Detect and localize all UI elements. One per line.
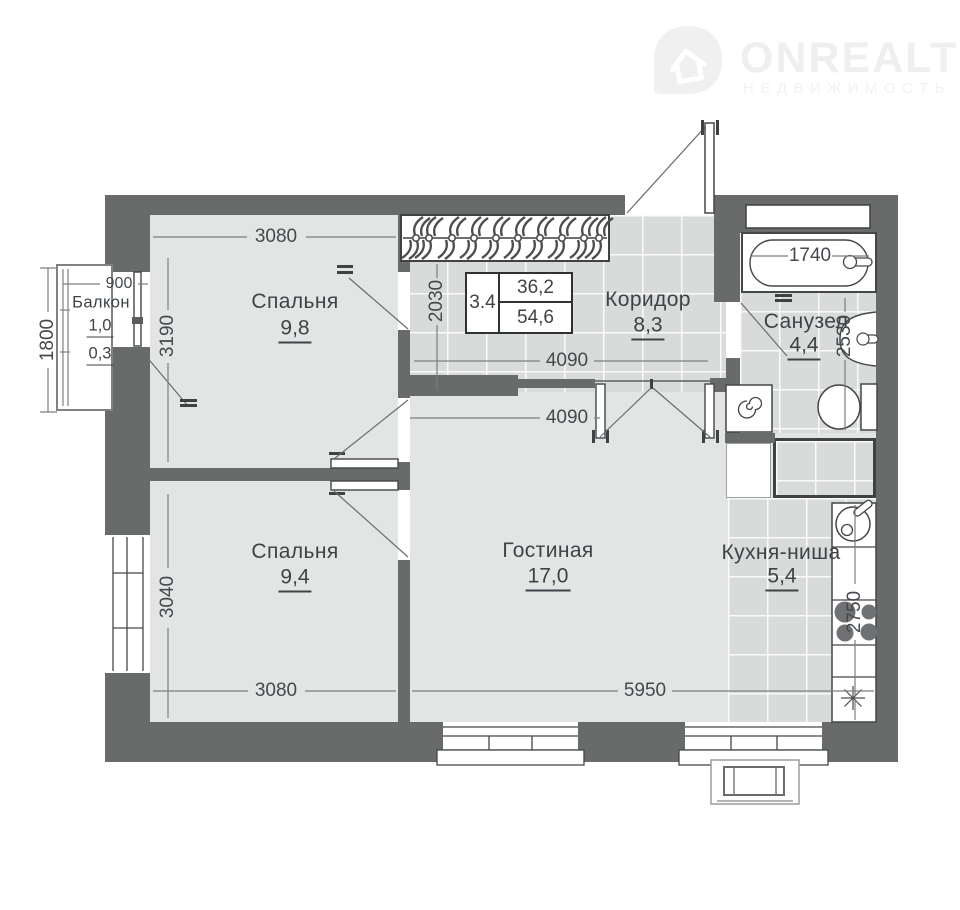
washing-machine	[726, 385, 772, 432]
dim-living-bottom-width: 5950	[624, 680, 666, 702]
area-summary-table: 3.4 36,2 54,6	[465, 272, 573, 334]
wardrobe	[401, 215, 613, 261]
bedroom1-area: 9,8	[278, 317, 311, 344]
area-summary-living: 36,2	[500, 274, 571, 303]
living-room-label: Гостиная	[502, 539, 593, 563]
dim-bathtub-length: 1740	[789, 245, 831, 267]
dim-corridor-width: 4090	[546, 350, 588, 372]
onrealt-logo-icon	[648, 20, 728, 100]
bedroom2-label: Спальня	[251, 540, 338, 564]
kitchen-window	[679, 722, 828, 765]
bedroom2-door	[329, 481, 408, 557]
balcony-area-full: 1,0	[87, 317, 114, 338]
living-room-double-door	[592, 379, 719, 443]
balcony-structure	[57, 265, 112, 410]
area-summary-total: 54,6	[500, 303, 571, 332]
dim-balcony-depth: 1800	[37, 319, 59, 361]
onrealt-logo-tagline: НЕДВИЖИМОСТЬ	[743, 80, 951, 97]
closet-door	[337, 265, 408, 329]
corridor-area: 8,3	[631, 314, 664, 341]
balcony-label: Балкон	[72, 294, 130, 313]
kitchen-niche-area: 5,4	[765, 565, 798, 592]
dim-living-width: 4090	[546, 407, 588, 429]
living-room-window	[437, 722, 584, 765]
bedroom2-window	[107, 535, 150, 673]
dim-bedroom2-depth: 3040	[157, 576, 179, 618]
toilet	[818, 384, 877, 430]
dim-balcony-width: 900	[106, 275, 133, 293]
bathroom-area: 4,4	[787, 334, 820, 361]
ac-basket	[711, 760, 799, 804]
dim-bedroom1-width: 3080	[255, 226, 297, 248]
bedroom1-door	[329, 400, 408, 468]
bathroom-niche	[746, 205, 870, 228]
living-room-area: 17,0	[526, 565, 571, 592]
dim-bedroom2-width: 3080	[255, 680, 297, 702]
dim-kitchen-counter-length: 2750	[844, 591, 866, 633]
floorplan-page: 3.4 36,2 54,6 Балкон 1,0 0,3 Спальня 9,8…	[0, 0, 960, 910]
onrealt-logo: ONREALT НЕДВИЖИМОСТЬ	[648, 20, 948, 104]
floorplan-linework	[0, 0, 960, 910]
entrance-door	[627, 120, 719, 213]
dim-bedroom1-depth: 3190	[157, 315, 179, 357]
bedroom2-area: 9,4	[278, 566, 311, 593]
vent-symbol	[841, 686, 865, 710]
kitchen-niche-label: Кухня-ниша	[721, 541, 840, 565]
dim-bathroom-depth: 2530	[834, 315, 856, 357]
corridor-label: Коридор	[605, 288, 691, 312]
dim-hall-depth: 2030	[426, 280, 448, 322]
bedroom1-label: Спальня	[251, 290, 338, 314]
balcony-area-reduced: 0,3	[87, 345, 114, 366]
onrealt-logo-text: ONREALT	[740, 34, 959, 83]
area-summary-left: 3.4	[467, 274, 500, 332]
